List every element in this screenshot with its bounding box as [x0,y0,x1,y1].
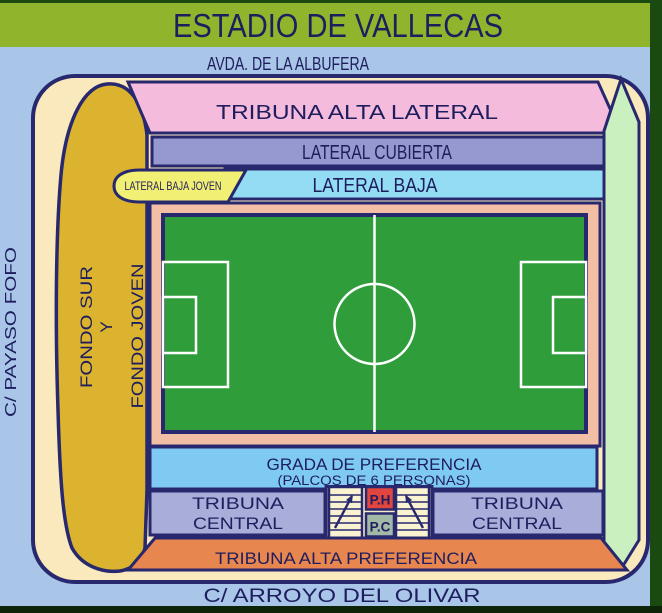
tribuna-central-left-label-line2: CENTRAL [193,514,283,533]
street-bottom-label: C/ ARROYO DEL OLIVAR [204,586,481,607]
fondo-sur-label-line3: FONDO JOVEN [128,264,147,409]
page-title: ESTADIO DE VALLECAS [173,7,503,44]
tribuna-alta-lateral-label: TRIBUNA ALTA LATERAL [216,102,498,124]
fondo-sur-label-line1: FONDO SUR [77,266,96,388]
street-left-label: C/ PAYASO FOFO [3,247,20,417]
fondo-sur-label-line2: Y [97,321,116,332]
tribuna-alta-preferencia-label: TRIBUNA ALTA PREFERENCIA [215,550,477,568]
tribuna-central-right-label-line2: CENTRAL [472,514,562,533]
right-edge-strip [650,0,662,613]
grada-preferencia-label-line1: GRADA DE PREFERENCIA [267,455,483,474]
stadium-map-scan: ESTADIO DE VALLECAS AVDA. DE LA ALBUFERA… [0,0,662,613]
palco-honor-label: P.H [370,493,391,508]
tribuna-central-right-label-line1: TRIBUNA [471,494,564,513]
palco-central-label: P.C [370,520,391,535]
lateral-baja-joven-label: LATERAL BAJA JOVEN [125,179,222,193]
stairs-right [396,487,429,538]
bottom-edge-strip [0,606,662,613]
top-edge-strip [0,0,662,3]
lateral-baja-label: LATERAL BAJA [313,175,439,197]
section-right-column [604,79,639,569]
stairs-left [329,487,362,538]
lateral-cubierta-label: LATERAL CUBIERTA [302,142,453,164]
stadium-map-svg: ESTADIO DE VALLECAS AVDA. DE LA ALBUFERA… [0,0,662,613]
street-top-label: AVDA. DE LA ALBUFERA [207,53,369,74]
tribuna-central-left-label-line1: TRIBUNA [192,494,285,513]
